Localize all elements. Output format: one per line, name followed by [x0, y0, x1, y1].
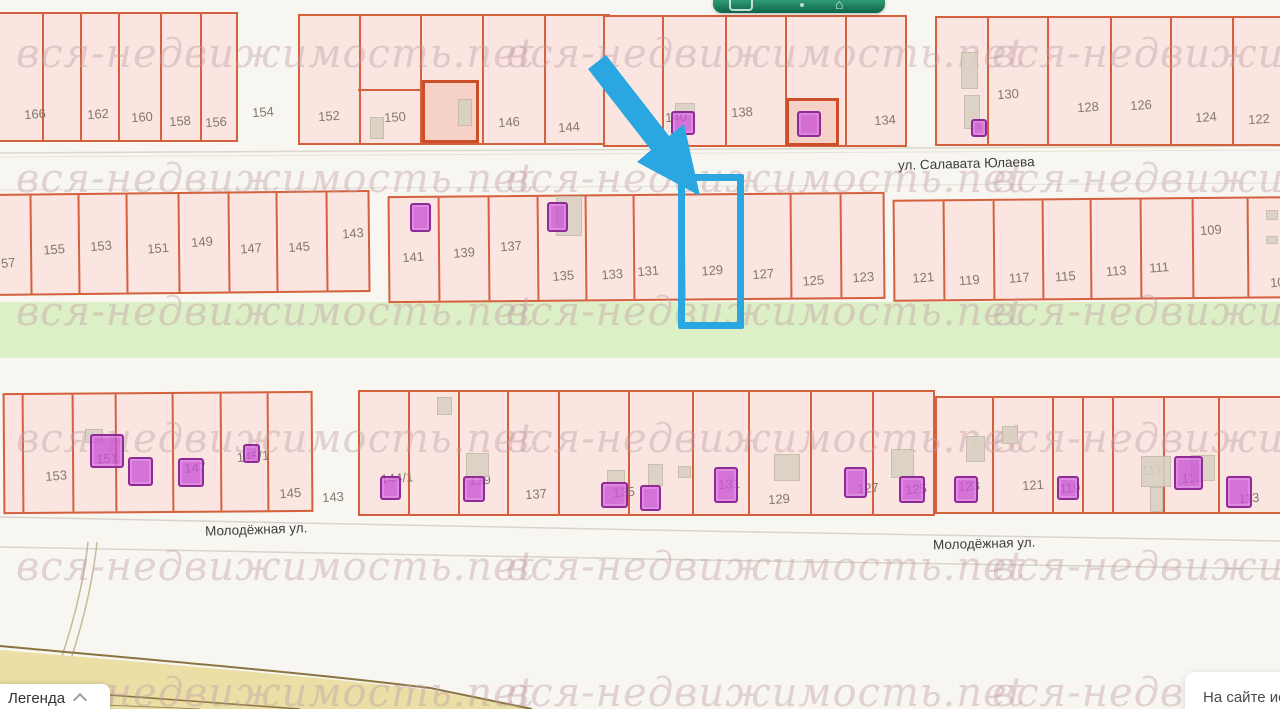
parcel-152[interactable] — [300, 16, 361, 143]
parcel-number: 109 — [1199, 222, 1222, 239]
parcel-block-A: 166162160158156 — [0, 12, 238, 142]
building-marker[interactable] — [410, 203, 431, 232]
parcel-number: 121 — [912, 269, 935, 286]
legend-button[interactable]: Легенда — [0, 684, 110, 709]
parcel-128[interactable] — [1049, 18, 1112, 144]
rounded-rect-icon[interactable] — [729, 0, 753, 11]
parcel-143[interactable] — [327, 192, 372, 290]
parcel-number: 124 — [1195, 109, 1218, 125]
parcel-number: 131 — [637, 263, 660, 280]
building-marker[interactable] — [971, 119, 987, 137]
building-marker[interactable] — [90, 434, 124, 468]
parcel-block-G: 12111911711511311110910 — [893, 196, 1280, 301]
parcel[interactable] — [410, 392, 460, 514]
watermark: вся-недвижимость.net — [992, 156, 1280, 202]
parcel-number: 121 — [1022, 477, 1045, 493]
map-canvas[interactable]: 1661621601581561521501481461441401381361… — [0, 0, 1280, 709]
parcel-number: 122 — [1248, 111, 1271, 127]
parcel-number: 154 — [252, 104, 275, 120]
parcel-number: 141 — [402, 249, 425, 266]
parcel-109[interactable] — [1194, 199, 1250, 297]
parcel-block-E: 57155153151149147145143 — [0, 190, 371, 296]
parcel-124[interactable] — [1172, 18, 1234, 144]
parcel-number: 127 — [752, 266, 775, 283]
building-footprint — [774, 454, 800, 481]
parcel-number: 151 — [147, 240, 170, 257]
map-toolbar[interactable]: ⌂ — [713, 0, 885, 13]
building-marker[interactable] — [1057, 476, 1079, 500]
watermark: вся-недвижимость.net — [992, 544, 1280, 590]
parcel-number: 115 — [1054, 268, 1076, 285]
building-footprint — [1266, 210, 1278, 220]
parcel-number: 153 — [45, 467, 68, 484]
street-label: Молодёжная ул. — [205, 520, 308, 539]
parcel-number: 158 — [169, 113, 192, 129]
parcel-number: 57 — [0, 255, 16, 271]
parcel-number: 111 — [1149, 259, 1170, 276]
parcel-111[interactable] — [1142, 199, 1195, 297]
street-label: ул. Салавата Юлаева — [898, 154, 1035, 173]
building-footprint — [1150, 487, 1163, 512]
building-footprint — [466, 453, 489, 477]
building-marker[interactable] — [1174, 456, 1203, 490]
parcel-block-F: 141139137135133131129127125123 — [388, 192, 886, 303]
parcel-number: 152 — [318, 108, 341, 124]
site-notice-text: На сайте ис — [1203, 689, 1280, 706]
parcel[interactable] — [605, 17, 664, 145]
building-footprint — [961, 52, 978, 89]
parcel-130[interactable] — [989, 18, 1049, 144]
parcel-number: 134 — [874, 112, 897, 128]
parcel-number: 147 — [240, 240, 263, 257]
parcel-number: 166 — [24, 106, 47, 122]
parcel-number: 155 — [43, 241, 66, 258]
parcel-number: 162 — [87, 106, 110, 122]
building-marker[interactable] — [899, 476, 925, 503]
parcel-number: 10 — [1269, 274, 1280, 290]
watermark: вся-недвижимость.net — [506, 670, 1025, 709]
parcel-number: 153 — [90, 237, 113, 254]
parcel-121[interactable] — [994, 398, 1054, 512]
site-notice: На сайте ис — [1185, 672, 1280, 709]
parcel-block-H: 153151147145/1145 — [3, 391, 314, 514]
parcel-115[interactable] — [1044, 200, 1093, 298]
parcel-number: 144 — [558, 119, 581, 135]
parcel-number: 149 — [191, 233, 214, 250]
parcel-number: 145 — [288, 238, 311, 255]
building-marker[interactable] — [671, 111, 695, 135]
building-footprint — [678, 466, 691, 478]
parcel-number: 123 — [852, 269, 875, 286]
parcel-number: 135 — [552, 267, 575, 284]
building-marker[interactable] — [797, 111, 821, 137]
building-footprint — [1266, 236, 1278, 244]
parcel-113[interactable] — [1092, 200, 1143, 298]
building-marker[interactable] — [243, 444, 260, 463]
legend-label: Легенда — [8, 690, 65, 707]
building-marker[interactable] — [954, 476, 978, 503]
parcel-138[interactable] — [727, 17, 787, 145]
building-footprint — [1141, 456, 1171, 487]
parcel-number: 146 — [498, 114, 521, 130]
parcel-number: 145 — [279, 485, 302, 502]
building-footprint — [966, 436, 985, 462]
watermark: вся-недвижимость.net — [16, 544, 535, 590]
building-footprint — [370, 117, 384, 139]
parcel-147[interactable] — [174, 394, 223, 511]
building-marker[interactable] — [463, 476, 485, 502]
building-footprint — [458, 99, 472, 126]
parcel-number: 143 — [322, 489, 345, 505]
building-marker[interactable] — [601, 482, 628, 508]
building-footprint — [648, 464, 663, 486]
building-marker[interactable] — [1226, 476, 1252, 508]
parcel[interactable] — [5, 395, 25, 512]
parcel[interactable] — [44, 14, 82, 140]
parcel-block-C: 140138136134 — [603, 15, 907, 147]
parcel-number: 128 — [1077, 99, 1100, 115]
parcel-number: 160 — [131, 109, 154, 125]
parcel-127[interactable] — [742, 195, 793, 298]
building-marker[interactable] — [714, 467, 738, 503]
building-marker[interactable] — [640, 485, 661, 511]
parcel-number: 129 — [768, 491, 791, 507]
building-marker[interactable] — [844, 467, 867, 498]
building-marker[interactable] — [380, 476, 401, 500]
building-marker[interactable] — [178, 458, 204, 487]
building-footprint — [1002, 426, 1018, 444]
dot-icon — [800, 3, 804, 7]
parcel-number: 139 — [453, 244, 476, 261]
street-label: Молодёжная ул. — [933, 535, 1036, 553]
building-marker[interactable] — [547, 202, 568, 232]
building-footprint — [437, 397, 452, 415]
chevron-up-icon — [73, 693, 87, 707]
parcel-number: 126 — [1130, 97, 1153, 113]
building-marker[interactable] — [128, 457, 153, 486]
parcel-number: 113 — [1105, 262, 1127, 279]
parcel-number: 137 — [525, 486, 548, 502]
parcel-number: 133 — [601, 266, 624, 283]
parcel[interactable] — [117, 394, 175, 511]
parcel-divider — [358, 89, 420, 91]
parcel-number: 143 — [341, 225, 364, 242]
parcel-number: 137 — [500, 238, 523, 255]
parcel-number: 117 — [1008, 269, 1030, 286]
building-footprint — [891, 449, 914, 478]
parcel-number: 130 — [997, 86, 1020, 102]
parcel-number: 150 — [384, 109, 407, 125]
highlight-rectangle — [678, 174, 744, 329]
parcel-number: 138 — [731, 104, 754, 120]
parcel-126[interactable] — [1112, 18, 1172, 144]
parcel-57[interactable] — [0, 196, 33, 294]
parcel[interactable] — [1084, 398, 1114, 512]
parcel-number: 125 — [802, 272, 825, 289]
parcel-133[interactable] — [587, 196, 636, 299]
map-screenshot: 1661621601581561521501481461441401381361… — [0, 0, 1280, 709]
parcel-number: 156 — [205, 114, 228, 130]
green-belt — [0, 302, 1280, 358]
parcel-number: 119 — [958, 272, 980, 289]
house-icon[interactable]: ⌂ — [835, 0, 843, 12]
parcel-153[interactable] — [24, 395, 75, 512]
